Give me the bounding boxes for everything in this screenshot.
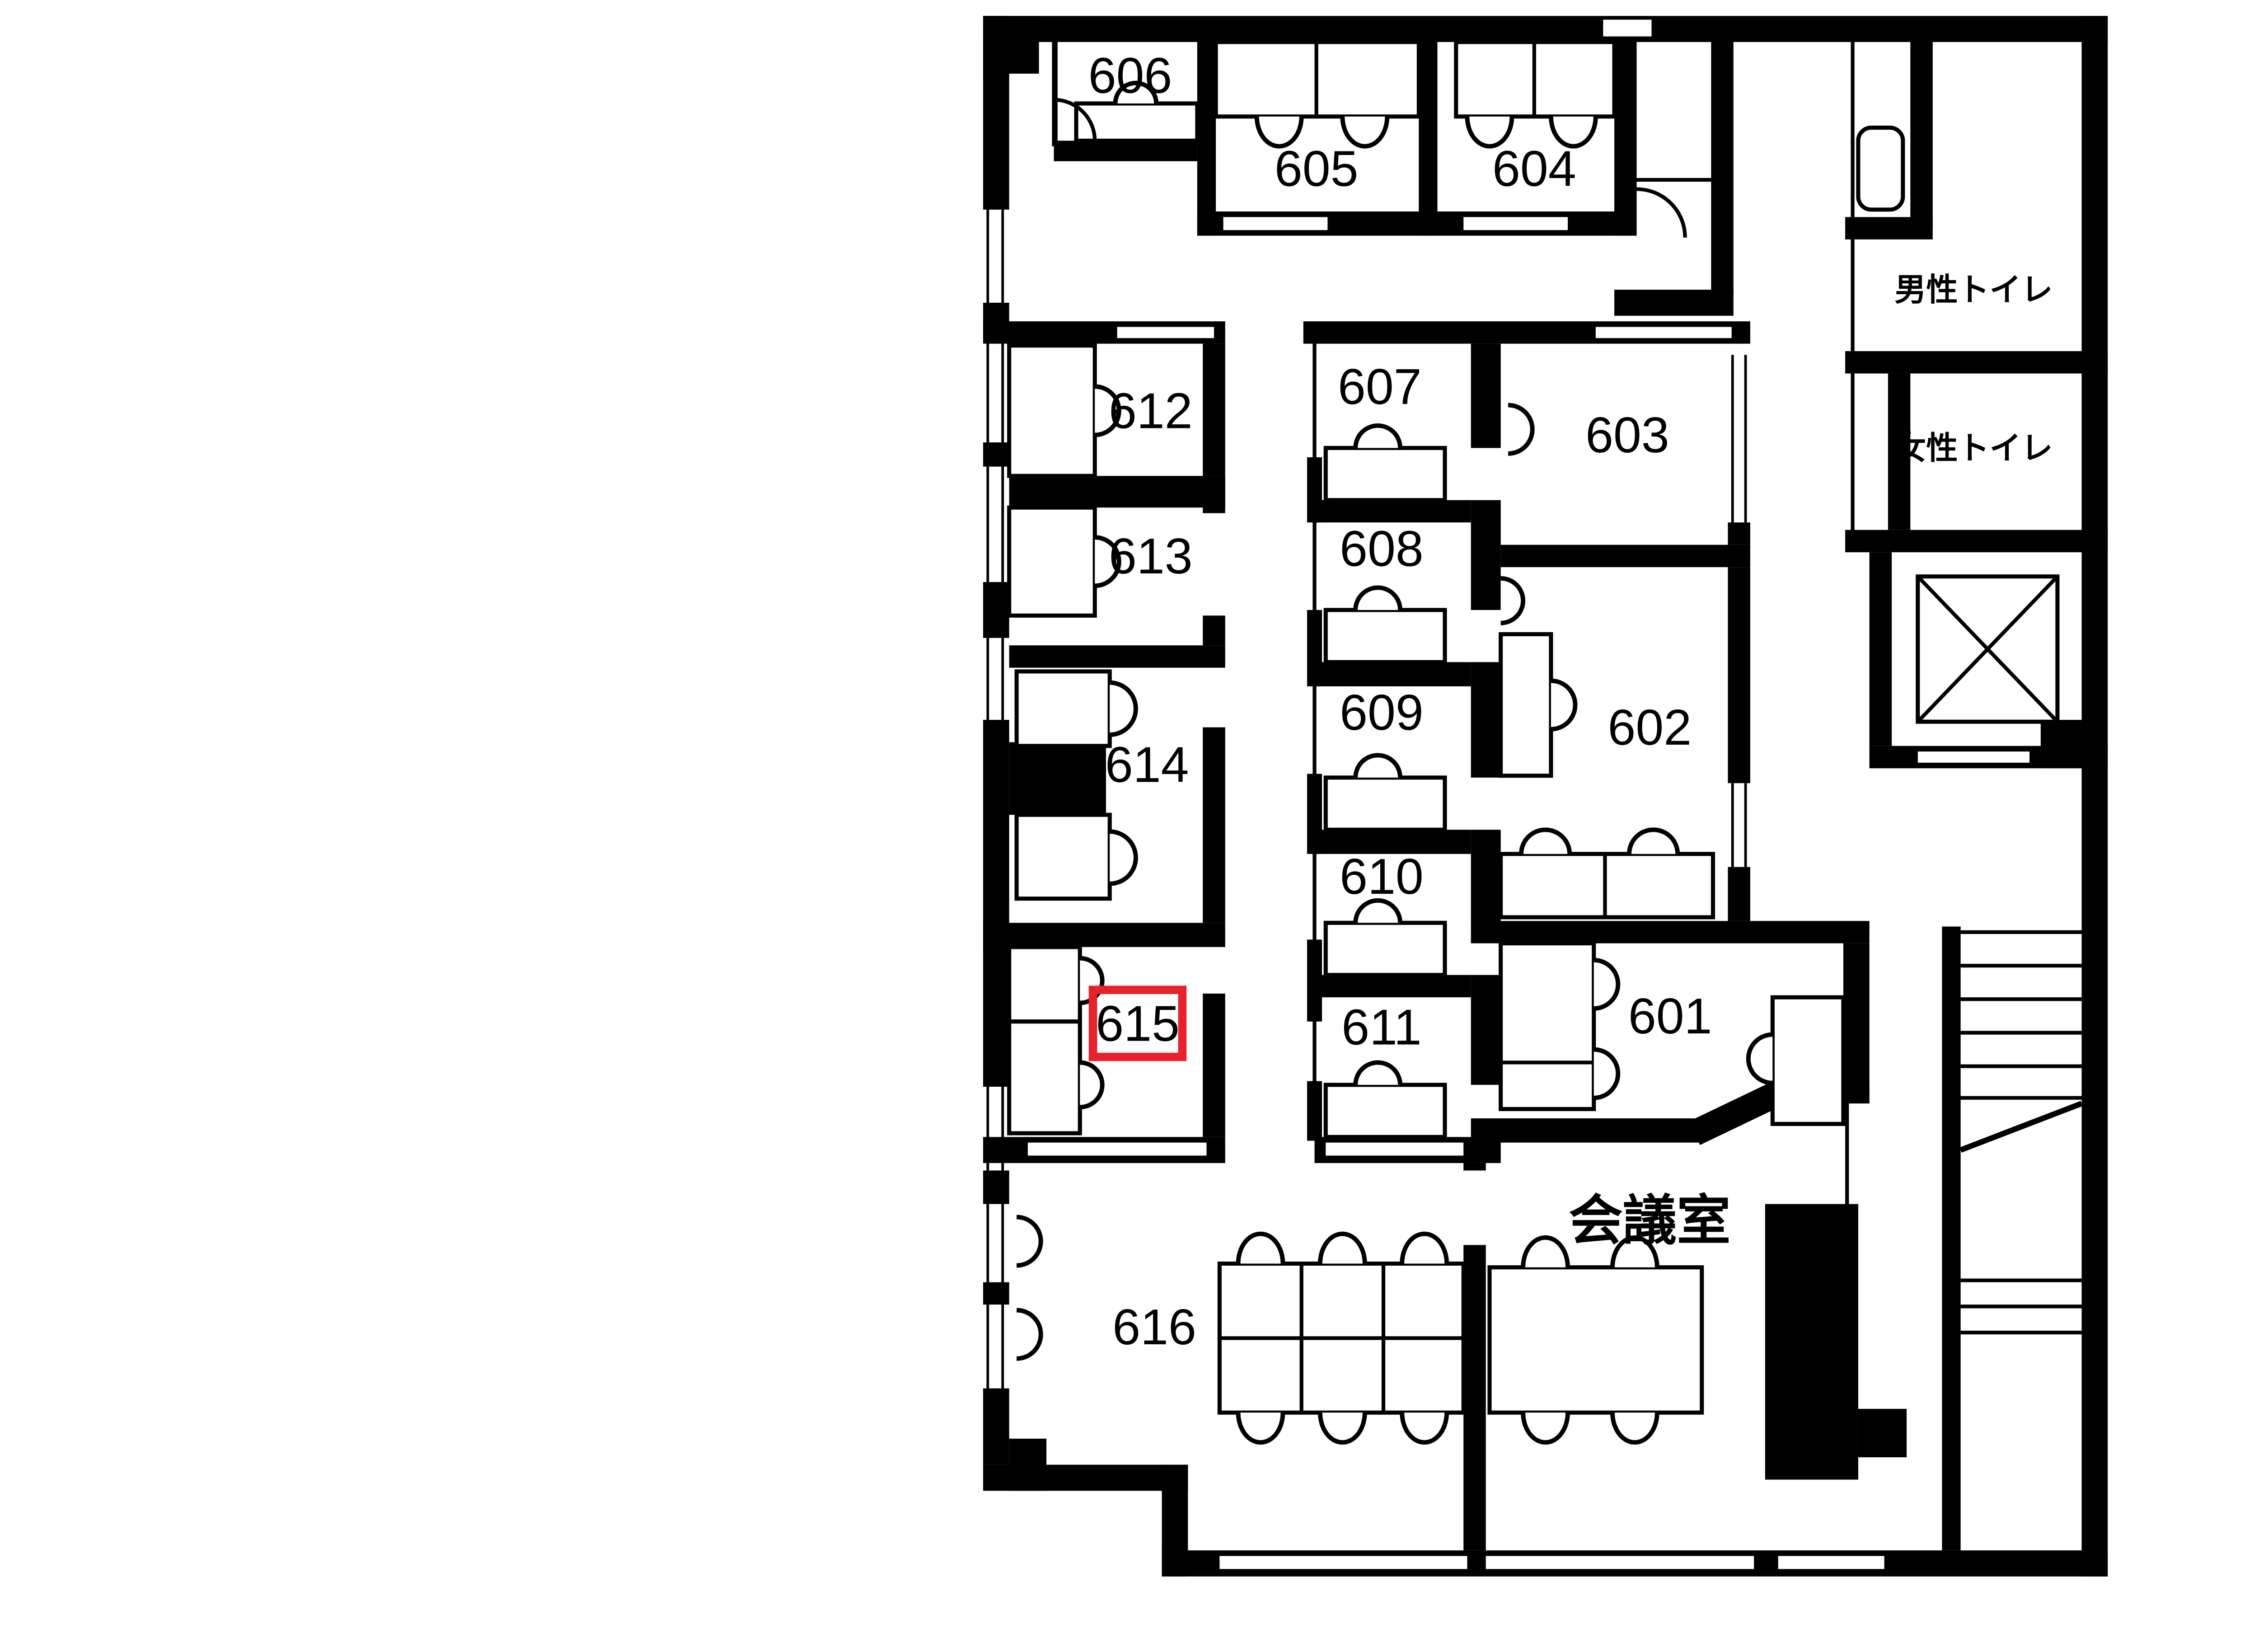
room-604-label: 604 [1492,141,1576,197]
toilet-fixture [1858,128,1903,210]
meeting-room-label: 会議室 [1569,1191,1731,1251]
desk-612 [1009,346,1095,476]
room-609-label: 609 [1340,684,1424,741]
furniture [1009,42,2082,1413]
table-grid-616 [1219,1263,1463,1413]
desk-611 [1326,1085,1445,1137]
desk-615-b [1009,1022,1080,1133]
stairs-icon [1961,932,2082,1333]
door-arc-shaft [1637,189,1685,238]
floor-plan-page: 606 605 604 612 613 614 615 607 608 609 … [0,0,2259,1652]
desk-602-left [1501,634,1551,776]
desk-615-a [1009,947,1080,1022]
desk-601-left [1501,943,1594,1109]
diagonal-wall-601 [1694,1090,1784,1133]
room-610-label: 610 [1340,848,1424,905]
room-615-label: 615 [1096,995,1180,1051]
room-614-label: 614 [1105,737,1189,793]
room-608-label: 608 [1340,520,1424,577]
desk-613 [1009,507,1095,615]
room-613-label: 613 [1109,528,1193,584]
room-611-label: 611 [1341,999,1421,1056]
desk-601-right [1772,997,1843,1124]
desk-614-a [1017,671,1110,746]
floor-plan-svg: 606 605 604 612 613 614 615 607 608 609 … [0,0,2259,1652]
room-603-label: 603 [1585,407,1669,463]
room-616-label: 616 [1112,1299,1196,1355]
room-605-label: 605 [1275,141,1359,197]
mens-toilet-label: 男性トイレ [1894,272,2053,307]
room-612-label: 612 [1109,382,1193,439]
desk-610 [1326,923,1445,975]
room-606-label: 606 [1088,47,1172,104]
desk-609 [1326,778,1445,830]
room-607-label: 607 [1338,358,1422,415]
elevator-icon [1918,577,2057,722]
womens-toilet-label: 女性トイレ [1894,430,2053,465]
desk-608 [1326,610,1445,662]
table-meeting-room [1490,1267,1702,1413]
desk-614-b [1017,815,1110,898]
desk-607 [1326,448,1445,500]
room-601-label: 601 [1628,988,1712,1044]
room-602-label: 602 [1608,699,1692,756]
